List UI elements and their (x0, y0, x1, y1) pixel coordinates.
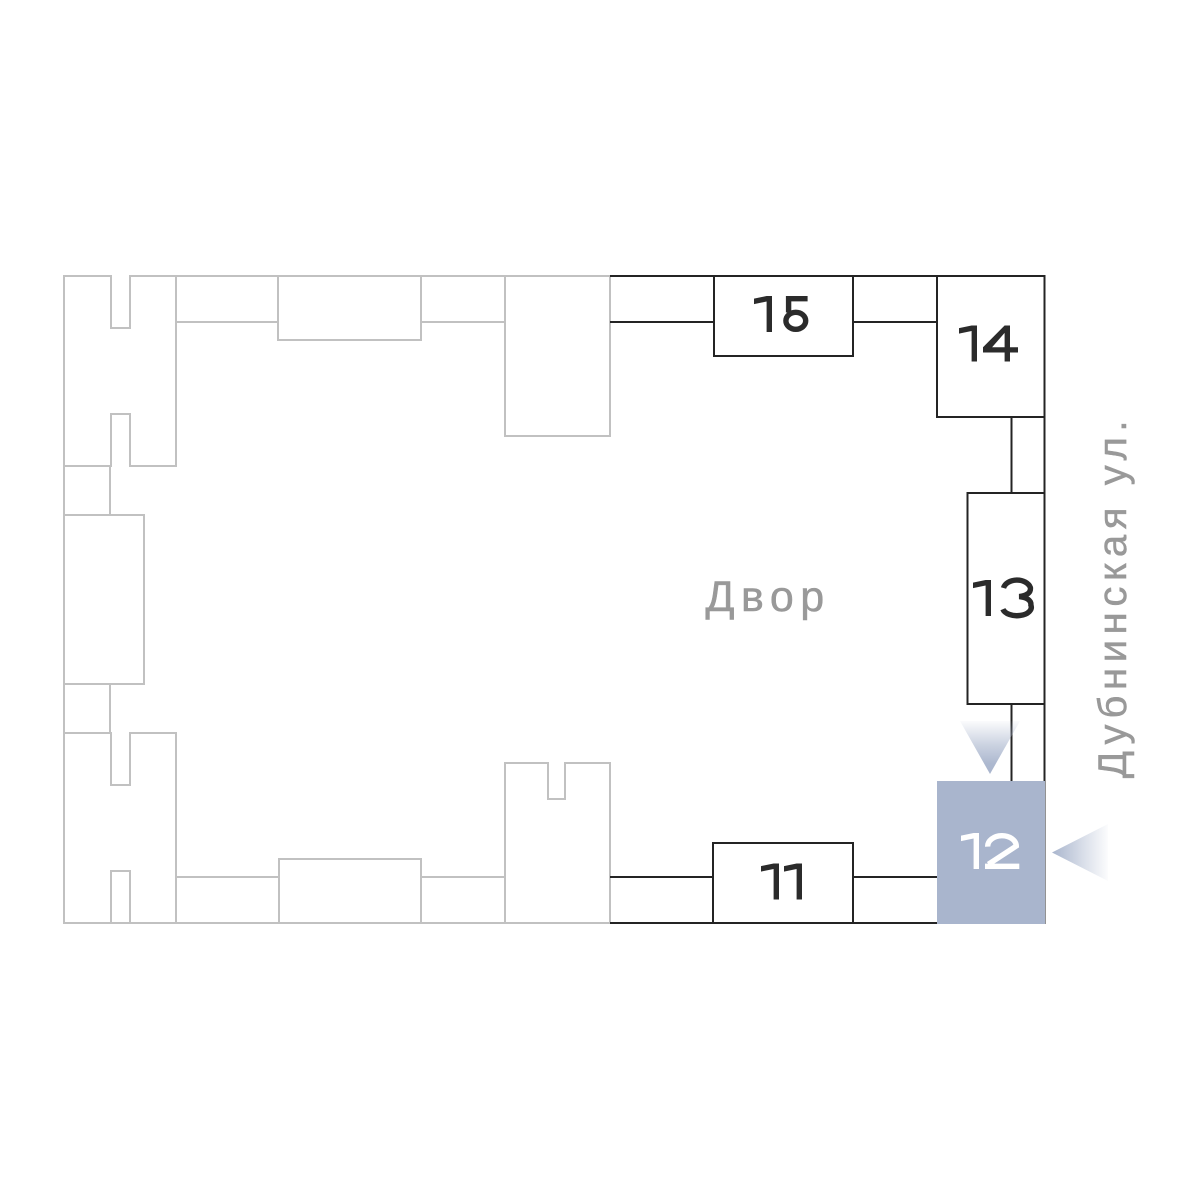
svg-text:Дубнинская ул.: Дубнинская ул. (1091, 415, 1135, 778)
svg-text:Двор: Двор (705, 573, 830, 621)
